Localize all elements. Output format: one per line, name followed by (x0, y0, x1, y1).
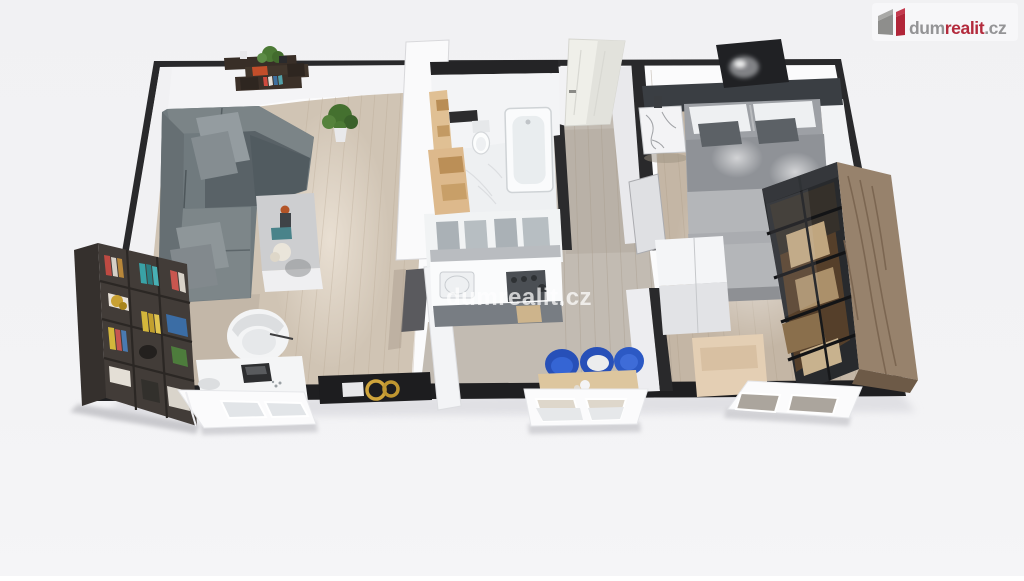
svg-text:dumrealit.cz: dumrealit.cz (909, 18, 1007, 38)
svg-text:dumrealit.cz: dumrealit.cz (446, 284, 592, 311)
